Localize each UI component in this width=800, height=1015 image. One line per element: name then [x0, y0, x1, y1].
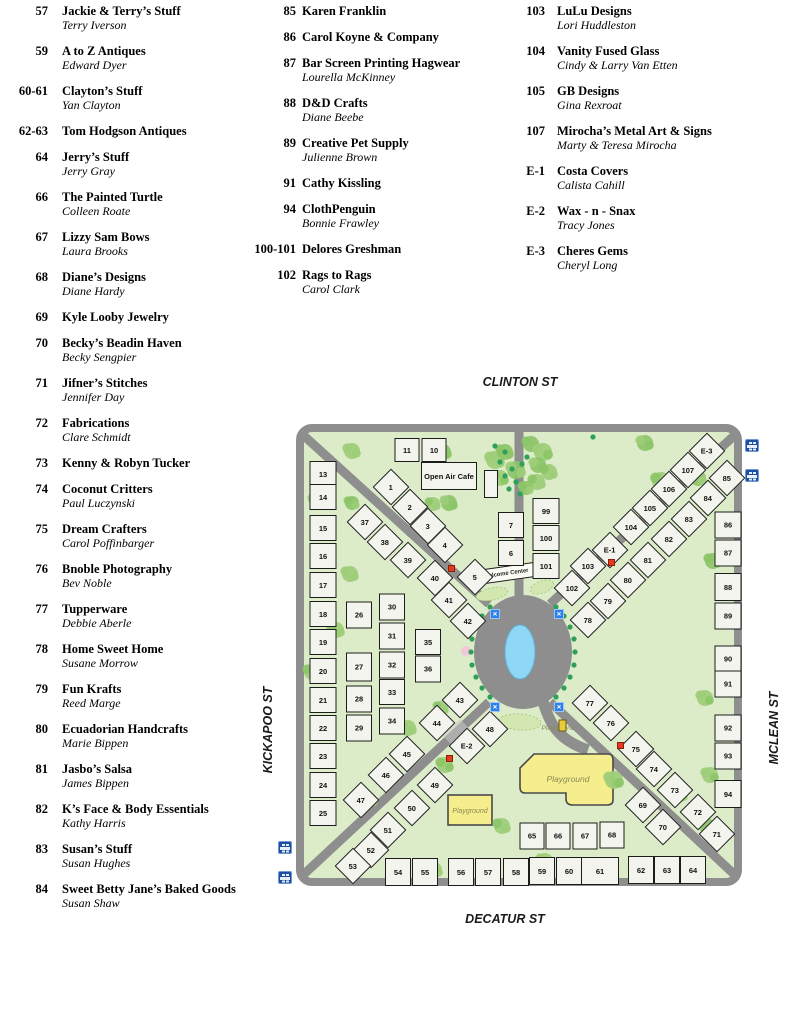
- map-booth-number: 57: [484, 868, 492, 877]
- map-booth-number: 88: [724, 583, 732, 592]
- booth-number: 69: [8, 310, 48, 324]
- hydrant-marker-icon: [448, 565, 455, 572]
- map-booth-number: 29: [355, 724, 363, 733]
- booth-number: 86: [248, 30, 296, 44]
- shrub-dot: [497, 459, 502, 464]
- map-booth-number: 53: [349, 862, 357, 871]
- map-booth-number: 32: [388, 661, 396, 670]
- map-booth-number: 28: [355, 695, 363, 704]
- vendor-name: Jackie & Terry’s Stuff: [62, 4, 244, 18]
- map-booth-number: 47: [357, 796, 365, 805]
- directory-entry: 59A to Z AntiquesEdward Dyer: [8, 44, 244, 72]
- map-booth-number: 36: [424, 665, 432, 674]
- map-booth-60: 60: [556, 857, 582, 885]
- map-booth-number: 15: [319, 524, 327, 533]
- map-booth-32: 32: [379, 652, 405, 679]
- map-booth-number: 87: [724, 549, 732, 558]
- owner-name: Cheryl Long: [557, 258, 745, 272]
- booth-number: 68: [8, 270, 48, 298]
- map-booth-number: 6: [509, 549, 513, 558]
- map-booth-58: 58: [503, 858, 529, 886]
- booth-number: E-1: [505, 164, 545, 192]
- owner-name: Diane Beebe: [302, 110, 488, 124]
- shrub-dot: [513, 479, 518, 484]
- shrub-dot: [468, 649, 473, 654]
- map-booth-number: 81: [644, 556, 652, 565]
- directory-entry: 104Vanity Fused GlassCindy & Larry Van E…: [505, 44, 745, 72]
- owner-name: Lori Huddleston: [557, 18, 745, 32]
- owner-name: Terry Iverson: [62, 18, 244, 32]
- owner-name: Julienne Brown: [302, 150, 488, 164]
- crossing-marker-icon: ✕: [490, 609, 500, 619]
- map-booth-94: 94: [715, 780, 742, 808]
- map-booth-number: 67: [581, 832, 589, 841]
- vendor-name: Mirocha’s Metal Art & Signs: [557, 124, 745, 138]
- booth-number: E-3: [505, 244, 545, 272]
- map-booth-26: 26: [346, 602, 372, 629]
- map-booth-61: 61: [581, 857, 619, 885]
- hydrant-marker-icon: [617, 742, 624, 749]
- booth-number: 87: [248, 56, 296, 84]
- map-booth-21: 21: [310, 687, 337, 713]
- hydrant-marker-icon: [446, 755, 453, 762]
- pond: [505, 625, 535, 679]
- tree-icon: [492, 818, 510, 834]
- map-booth-number: 42: [464, 617, 472, 626]
- crossing-marker-icon: ✕: [554, 702, 564, 712]
- map-booth-number: 69: [639, 801, 647, 810]
- playground-small-label: Playground: [452, 808, 489, 815]
- shrub-dot: [553, 694, 558, 699]
- directory-entry: 67Lizzy Sam BowsLaura Brooks: [8, 230, 244, 258]
- map-booth-number: 19: [319, 638, 327, 647]
- map-booth-number: 11: [403, 446, 411, 455]
- map-booth-19: 19: [310, 629, 337, 655]
- booth-number: 88: [248, 96, 296, 124]
- map-booth-11: 11: [395, 438, 420, 462]
- map-booth-number: 20: [319, 667, 327, 676]
- map-booth-100: 100: [533, 525, 560, 551]
- tree-icon: [344, 496, 360, 510]
- map-booth-10: 10: [422, 438, 447, 462]
- vendor-name: LuLu Designs: [557, 4, 745, 18]
- map-booth-number: 41: [445, 596, 453, 605]
- map-booth-number: 26: [355, 611, 363, 620]
- vendor-name: Clayton’s Stuff: [62, 84, 244, 98]
- map-booth-number: 71: [713, 830, 721, 839]
- map-booth-number: 55: [421, 868, 429, 877]
- map-booth-6: 6: [498, 540, 524, 566]
- map-booth-number: 31: [388, 632, 396, 641]
- map-booth-89: 89: [715, 603, 742, 630]
- map-booth-number: 56: [457, 868, 465, 877]
- map-booth-number: 58: [512, 868, 520, 877]
- map-booth-36: 36: [415, 656, 441, 683]
- crossing-marker-icon: ✕: [554, 609, 564, 619]
- vendor-name: Karen Franklin: [302, 4, 488, 18]
- map-booth-88: 88: [715, 573, 742, 601]
- tree-icon: [635, 435, 653, 451]
- map-booth-27: 27: [346, 653, 372, 682]
- owner-name: Carol Clark: [302, 282, 488, 296]
- map-booth-30: 30: [379, 594, 405, 621]
- map-booth-34: 34: [379, 708, 405, 735]
- shrub-dot: [571, 636, 576, 641]
- map-booth-number: 76: [607, 719, 615, 728]
- shrub-dot: [502, 473, 507, 478]
- map-booth-number: 75: [632, 745, 640, 754]
- shrub-dot: [502, 449, 507, 454]
- directory-entry: 68Diane’s DesignsDiane Hardy: [8, 270, 244, 298]
- tree-icon: [695, 690, 713, 706]
- map-booth-number: 49: [431, 781, 439, 790]
- owner-name: Jerry Gray: [62, 164, 244, 178]
- booth-number: 64: [8, 150, 48, 178]
- picnic-table-icon: [745, 469, 759, 482]
- map-booth-number: 64: [689, 866, 697, 875]
- map-booth-56: 56: [448, 858, 474, 886]
- owner-name: Laura Brooks: [62, 244, 244, 258]
- map-booth-number: E-2: [461, 741, 473, 750]
- map-booth-number: 105: [644, 503, 657, 512]
- directory-entry: 69Kyle Looby Jewelry: [8, 310, 244, 324]
- directory-entry: 100-101Delores Greshman: [248, 242, 488, 256]
- booth-number: 107: [505, 124, 545, 152]
- booth-number: 104: [505, 44, 545, 72]
- hydrant-marker-icon: [608, 559, 615, 566]
- map-booth-number: 46: [382, 771, 390, 780]
- directory-entry: 64Jerry’s StuffJerry Gray: [8, 150, 244, 178]
- directory-entry: 91Cathy Kissling: [248, 176, 488, 190]
- map-booth-number: 7: [509, 521, 513, 530]
- tree-icon: [439, 495, 457, 511]
- open-air-cafe: Open Air Cafe: [421, 462, 477, 490]
- map-booth-number: 21: [319, 696, 327, 705]
- booth-number: 62-63: [8, 124, 48, 138]
- map-booth-87: 87: [715, 540, 742, 567]
- shrub-dot: [506, 486, 511, 491]
- map-booth-number: 68: [608, 831, 616, 840]
- map-booth-22: 22: [310, 715, 337, 741]
- picnic-table-icon: [278, 871, 292, 884]
- map-booth-number: 5: [473, 572, 477, 581]
- map-booth-35: 35: [415, 629, 441, 655]
- directory-entry: 89Creative Pet SupplyJulienne Brown: [248, 136, 488, 164]
- vendor-name: Vanity Fused Glass: [557, 44, 745, 58]
- shrub-dot: [561, 685, 566, 690]
- map-booth-number: 72: [694, 808, 702, 817]
- map-booth-number: 85: [723, 474, 731, 483]
- directory-entry: E-1Costa CoversCalista Cahill: [505, 164, 745, 192]
- shrub-dot: [571, 662, 576, 667]
- vendor-name: A to Z Antiques: [62, 44, 244, 58]
- map-booth-29: 29: [346, 715, 372, 742]
- vendor-name: Diane’s Designs: [62, 270, 244, 284]
- map-booth-59: 59: [529, 857, 555, 885]
- map-booth-101: 101: [533, 553, 560, 579]
- map-booth-number: 25: [319, 809, 327, 818]
- vendor-name: Kyle Looby Jewelry: [62, 310, 244, 324]
- map-booth-28: 28: [346, 686, 372, 713]
- map-booth-63: 63: [654, 856, 680, 884]
- map-booth-62: 62: [628, 856, 654, 884]
- vendor-name: GB Designs: [557, 84, 745, 98]
- vendor-name: Tom Hodgson Antiques: [62, 124, 244, 138]
- map-booth-number: 66: [554, 832, 562, 841]
- booth-number: 91: [248, 176, 296, 190]
- map-booth-18: 18: [310, 601, 337, 627]
- directory-entry: 87Bar Screen Printing HagwearLourella Mc…: [248, 56, 488, 84]
- picnic-table-icon: [278, 841, 292, 854]
- map-booth-number: 70: [659, 823, 667, 832]
- map-booth-number: 18: [319, 610, 327, 619]
- map-booth-number: 35: [424, 638, 432, 647]
- map-booth-number: 48: [486, 725, 494, 734]
- map-booth-86: 86: [715, 512, 742, 539]
- vendor-name: Costa Covers: [557, 164, 745, 178]
- map-booth-number: 3: [426, 521, 430, 530]
- map-booth-15: 15: [310, 515, 337, 541]
- directory-entry: 66The Painted TurtleColleen Roate: [8, 190, 244, 218]
- booth-number: 70: [8, 336, 48, 364]
- map-booth-number: 2: [408, 502, 412, 511]
- owner-name: Becky Sengpier: [62, 350, 244, 364]
- map-booth-number: E-1: [604, 545, 616, 554]
- owner-name: Yan Clayton: [62, 98, 244, 112]
- park-map: CLINTON ST DECATUR ST KICKAPOO ST MCLEAN…: [0, 370, 800, 1015]
- shrub-dot: [492, 443, 497, 448]
- map-booth-number: 106: [663, 484, 676, 493]
- map-booth-number: 30: [388, 603, 396, 612]
- map-booth-number: 54: [394, 868, 402, 877]
- shrub-dot: [519, 461, 524, 466]
- tree-icon: [342, 443, 360, 459]
- booth-number: 103: [505, 4, 545, 32]
- map-booth-55: 55: [412, 858, 438, 886]
- map-booth-number: 102: [566, 583, 579, 592]
- shrub-dot: [473, 674, 478, 679]
- map-booth-68: 68: [600, 822, 625, 849]
- map-booth-number: 73: [671, 786, 679, 795]
- street-label-decatur: DECATUR ST: [425, 912, 585, 926]
- map-booth-number: 63: [663, 866, 671, 875]
- directory-entry: 86Carol Koyne & Company: [248, 30, 488, 44]
- vendor-name: Lizzy Sam Bows: [62, 230, 244, 244]
- map-booth-number: 50: [408, 804, 416, 813]
- booth-number: 100-101: [248, 242, 296, 256]
- map-booth-number: 93: [724, 752, 732, 761]
- map-booth-93: 93: [715, 743, 742, 770]
- vendor-name: ClothPenguin: [302, 202, 488, 216]
- map-booth-number: 52: [367, 846, 375, 855]
- map-booth-64: 64: [680, 856, 706, 884]
- map-booth-number: 60: [565, 867, 573, 876]
- map-booth-24: 24: [310, 772, 337, 798]
- map-booth-number: 77: [586, 699, 594, 708]
- directory-entry: 85Karen Franklin: [248, 4, 488, 18]
- map-booth-99: 99: [533, 498, 560, 524]
- vendor-name: Jerry’s Stuff: [62, 150, 244, 164]
- map-booth-57: 57: [475, 858, 501, 886]
- map-booth-7: 7: [498, 512, 524, 538]
- owner-name: Lourella McKinney: [302, 70, 488, 84]
- park-area: Playground Playground Playground Open Ai…: [296, 424, 742, 886]
- booth-number: E-2: [505, 204, 545, 232]
- street-label-mclean: MCLEAN ST: [767, 680, 781, 776]
- booth-number: 94: [248, 202, 296, 230]
- map-booth-number: 38: [381, 538, 389, 547]
- owner-name: Tracy Jones: [557, 218, 745, 232]
- vendor-name: Delores Greshman: [302, 242, 488, 256]
- vendor-name: D&D Crafts: [302, 96, 488, 110]
- map-booth-number: 84: [704, 494, 712, 503]
- map-booth-92: 92: [715, 715, 742, 742]
- map-booth-number: 10: [430, 446, 438, 455]
- map-booth-23: 23: [310, 743, 337, 769]
- map-booth-number: 103: [582, 561, 595, 570]
- shrub-dot: [517, 491, 522, 496]
- map-booth-17: 17: [310, 572, 337, 598]
- directory-entry: 60-61Clayton’s StuffYan Clayton: [8, 84, 244, 112]
- owner-name: Edward Dyer: [62, 58, 244, 72]
- map-booth-number: 16: [319, 552, 327, 561]
- directory-entry: 62-63Tom Hodgson Antiques: [8, 124, 244, 138]
- street-label-clinton: CLINTON ST: [440, 375, 600, 389]
- directory-entry: E-3Cheres GemsCheryl Long: [505, 244, 745, 272]
- booth-number: 105: [505, 84, 545, 112]
- tree-icon: [340, 566, 358, 582]
- owner-name: Cindy & Larry Van Etten: [557, 58, 745, 72]
- shrub-dot: [572, 649, 577, 654]
- map-booth-number: 74: [650, 765, 658, 774]
- map-booth-number: 4: [443, 540, 447, 549]
- booth-number: 66: [8, 190, 48, 218]
- map-booth-number: 91: [724, 680, 732, 689]
- shrub-dot: [590, 434, 595, 439]
- map-booth-66: 66: [546, 823, 571, 850]
- vendor-name: Carol Koyne & Company: [302, 30, 488, 44]
- map-booth-number: 100: [540, 534, 553, 543]
- map-booth-67: 67: [573, 823, 598, 850]
- map-booth-number: 1: [389, 482, 393, 491]
- owner-name: Gina Rexroat: [557, 98, 745, 112]
- directory-entry: 70Becky’s Beadin HavenBecky Sengpier: [8, 336, 244, 364]
- vendor-name: Creative Pet Supply: [302, 136, 488, 150]
- map-booth-number: 27: [355, 663, 363, 672]
- shrub-dot: [509, 466, 514, 471]
- map-booth-number: 89: [724, 612, 732, 621]
- directory-entry: E-2Wax - n - SnaxTracy Jones: [505, 204, 745, 232]
- map-booth-54: 54: [385, 858, 411, 886]
- shrub-dot: [567, 624, 572, 629]
- map-booth-number: 107: [682, 465, 695, 474]
- directory-entry: 57Jackie & Terry’s StuffTerry Iverson: [8, 4, 244, 32]
- map-booth-number: 39: [404, 556, 412, 565]
- map-booth-number: 33: [388, 688, 396, 697]
- directory-column-2: 85Karen Franklin86Carol Koyne & Company8…: [248, 4, 488, 308]
- map-booth-number: 99: [542, 507, 550, 516]
- booth-number: 85: [248, 4, 296, 18]
- map-booth-90: 90: [715, 646, 742, 673]
- map-booth-number: 37: [361, 518, 369, 527]
- directory-entry: 88D&D CraftsDiane Beebe: [248, 96, 488, 124]
- map-booth-31: 31: [379, 623, 405, 650]
- map-booth-number: 43: [456, 696, 464, 705]
- picnic-table-icon: [745, 439, 759, 452]
- owner-name: Diane Hardy: [62, 284, 244, 298]
- shrub-dot: [469, 662, 474, 667]
- owner-name: Marty & Teresa Mirocha: [557, 138, 745, 152]
- vendor-name: Bar Screen Printing Hagwear: [302, 56, 488, 70]
- booth-number: 60-61: [8, 84, 48, 112]
- map-booth-91: 91: [715, 671, 742, 698]
- map-booth-number: 92: [724, 724, 732, 733]
- directory-column-3: 103LuLu DesignsLori Huddleston104Vanity …: [505, 4, 745, 284]
- vendor-name: Rags to Rags: [302, 268, 488, 282]
- map-booth-number: 23: [319, 752, 327, 761]
- map-booth-number: 59: [538, 867, 546, 876]
- owner-name: Colleen Roate: [62, 204, 244, 218]
- vendor-name: The Painted Turtle: [62, 190, 244, 204]
- booth-number: 67: [8, 230, 48, 258]
- vendor-name: Cathy Kissling: [302, 176, 488, 190]
- vendor-name: Cheres Gems: [557, 244, 745, 258]
- map-booth-number: E-3: [701, 446, 713, 455]
- map-booth-25: 25: [310, 800, 337, 826]
- map-booth-number: 94: [724, 790, 732, 799]
- map-booth-number: 45: [403, 750, 411, 759]
- map-booth-16: 16: [310, 543, 337, 569]
- map-booth-number: 65: [528, 832, 536, 841]
- map-booth-20: 20: [310, 658, 337, 684]
- shrub-dot: [567, 674, 572, 679]
- street-label-kickapoo: KICKAPOO ST: [261, 682, 275, 778]
- shrub-dot: [524, 454, 529, 459]
- playground-large-label: Playground: [546, 774, 589, 784]
- map-booth-number: 83: [685, 515, 693, 524]
- map-booth-number: 61: [596, 867, 604, 876]
- booth-number: 59: [8, 44, 48, 72]
- map-booth-blank: [484, 470, 498, 498]
- map-booth-14: 14: [310, 484, 337, 510]
- directory-entry: 107Mirocha’s Metal Art & SignsMarty & Te…: [505, 124, 745, 152]
- directory-entry: 103LuLu DesignsLori Huddleston: [505, 4, 745, 32]
- directory-entry: 102Rags to RagsCarol Clark: [248, 268, 488, 296]
- map-booth-number: 13: [319, 470, 327, 479]
- map-booth-number: 14: [319, 493, 327, 502]
- booth-number: 89: [248, 136, 296, 164]
- map-booth-number: 24: [319, 781, 327, 790]
- map-booth-65: 65: [520, 823, 545, 850]
- map-booth-number: 78: [584, 616, 592, 625]
- booth-number: 102: [248, 268, 296, 296]
- vendor-name: Wax - n - Snax: [557, 204, 745, 218]
- map-booth-number: 22: [319, 724, 327, 733]
- map-booth-number: 79: [604, 597, 612, 606]
- map-booth-number: 82: [665, 535, 673, 544]
- map-booth-number: 44: [433, 719, 441, 728]
- owner-name: Calista Cahill: [557, 178, 745, 192]
- map-booth-number: 80: [624, 576, 632, 585]
- map-booth-number: 90: [724, 655, 732, 664]
- map-booth-number: 86: [724, 521, 732, 530]
- map-booth-number: 51: [384, 826, 392, 835]
- map-booth-number: 40: [431, 574, 439, 583]
- directory-entry: 105GB DesignsGina Rexroat: [505, 84, 745, 112]
- directory-entry: 94ClothPenguinBonnie Frawley: [248, 202, 488, 230]
- map-booth-number: 62: [637, 866, 645, 875]
- owner-name: Bonnie Frawley: [302, 216, 488, 230]
